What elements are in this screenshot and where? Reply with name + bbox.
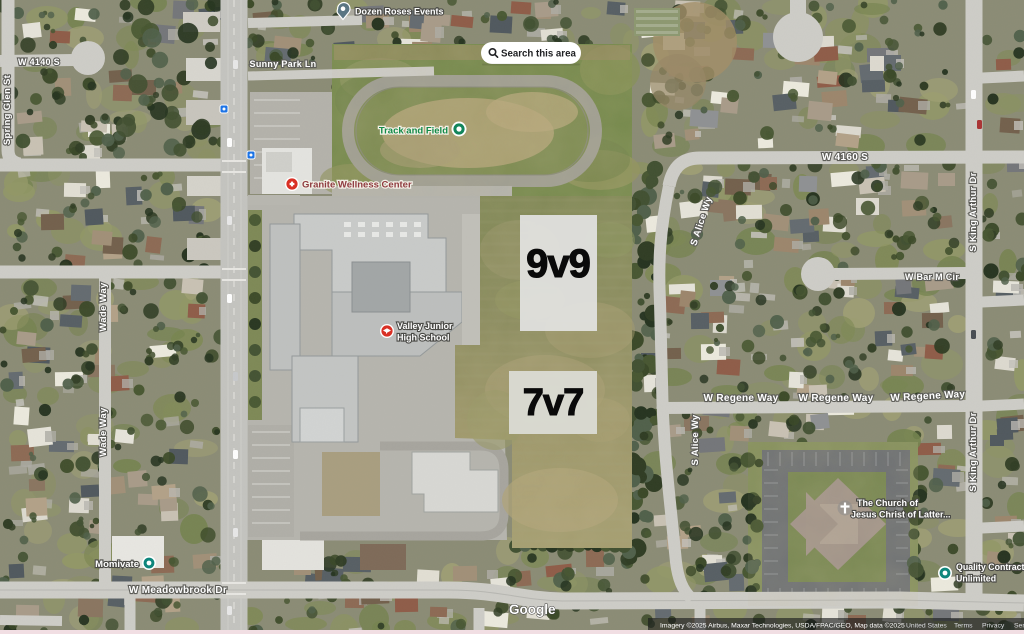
svg-text:Valley Junior: Valley Junior bbox=[397, 321, 453, 331]
svg-text:7v7: 7v7 bbox=[523, 382, 583, 424]
svg-text:High School: High School bbox=[397, 333, 450, 343]
svg-text:Imagery ©2025 Airbus, Maxar Te: Imagery ©2025 Airbus, Maxar Technologies… bbox=[660, 622, 905, 630]
svg-text:Dozen Roses Events: Dozen Roses Events bbox=[355, 7, 444, 17]
svg-text:W 4160 S: W 4160 S bbox=[822, 152, 868, 163]
svg-text:Privacy: Privacy bbox=[982, 623, 1005, 630]
svg-text:9v9: 9v9 bbox=[526, 242, 590, 286]
svg-text:W Meadowbrook Dr: W Meadowbrook Dr bbox=[129, 585, 227, 596]
svg-text:Jesus Christ of Latter...: Jesus Christ of Latter... bbox=[851, 510, 951, 520]
svg-text:Wade Way: Wade Way bbox=[98, 282, 109, 332]
svg-text:W 4140 S: W 4140 S bbox=[18, 57, 60, 67]
svg-text:Granite Wellness Center: Granite Wellness Center bbox=[302, 180, 412, 191]
svg-text:S Alice Wy: S Alice Wy bbox=[690, 414, 701, 465]
svg-text:W Bar M Cir: W Bar M Cir bbox=[905, 272, 960, 282]
svg-text:Spring Glen St: Spring Glen St bbox=[2, 74, 13, 145]
svg-text:Unlimited: Unlimited bbox=[956, 574, 996, 584]
svg-text:W Regene Way: W Regene Way bbox=[799, 393, 874, 404]
svg-text:S King Arthur Dr: S King Arthur Dr bbox=[968, 172, 979, 251]
svg-text:Wade Way: Wade Way bbox=[98, 407, 109, 457]
svg-text:Send: Send bbox=[1014, 623, 1024, 630]
svg-text:Search this area: Search this area bbox=[501, 49, 576, 60]
svg-text:S King Arthur Dr: S King Arthur Dr bbox=[968, 412, 979, 491]
svg-text:Terms: Terms bbox=[954, 623, 973, 630]
svg-text:United States: United States bbox=[906, 623, 947, 630]
svg-text:Quality Contract...: Quality Contract... bbox=[956, 562, 1024, 572]
svg-text:W Regene Way: W Regene Way bbox=[704, 393, 779, 404]
svg-text:Google: Google bbox=[509, 602, 556, 617]
svg-text:The Church of: The Church of bbox=[857, 498, 919, 508]
svg-text:Track and Field: Track and Field bbox=[379, 126, 448, 137]
svg-text:Momivate: Momivate bbox=[95, 559, 139, 570]
svg-text:Sunny Park Ln: Sunny Park Ln bbox=[250, 59, 317, 69]
